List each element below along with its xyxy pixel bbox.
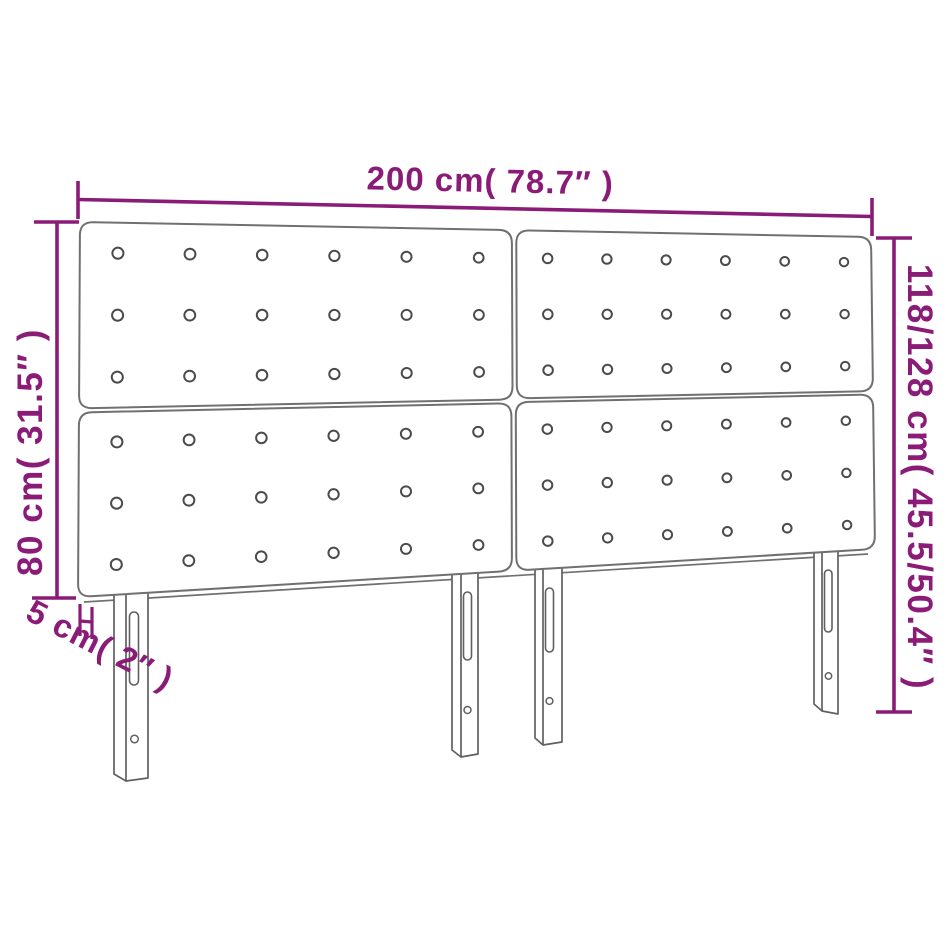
tufting-button <box>183 495 194 506</box>
tufting-button <box>842 417 851 426</box>
tufting-button <box>329 310 339 320</box>
tufting-button <box>722 363 731 372</box>
headboard-panel-lower-right <box>516 395 875 570</box>
leg-screw-hole <box>464 707 471 714</box>
tufting-button <box>543 310 553 320</box>
tufting-button <box>841 362 850 371</box>
depth-dimension-label: 5 cm( 2″ ) <box>21 592 180 697</box>
tufting-button <box>328 548 338 558</box>
leg-slot <box>825 570 833 632</box>
tufting-button <box>111 559 122 570</box>
tufting-button <box>112 248 123 259</box>
tufting-button <box>184 371 195 382</box>
width-dimension-label: 200 cm( 78.7″ ) <box>366 159 614 201</box>
headboard-leg <box>535 566 562 745</box>
tufting-button <box>781 310 790 319</box>
tufting-button <box>183 555 194 566</box>
headboard-leg <box>814 549 838 714</box>
leg-screw-hole <box>825 673 831 679</box>
tufting-button <box>256 551 267 562</box>
tufting-button <box>721 310 730 319</box>
tufting-button <box>603 478 612 487</box>
tufting-button <box>329 251 339 261</box>
tufting-button <box>602 423 611 432</box>
tufting-button <box>662 421 671 430</box>
tufting-button <box>257 370 268 381</box>
tufting-button <box>781 363 790 372</box>
tufting-button <box>257 250 268 261</box>
tufting-button <box>474 367 484 377</box>
tufting-button <box>474 540 484 550</box>
tufting-button <box>782 471 791 480</box>
tufting-button <box>329 369 339 379</box>
tufting-button <box>842 469 851 478</box>
tufting-button <box>722 473 731 482</box>
tufting-button <box>662 364 671 373</box>
tufting-button <box>474 253 484 263</box>
tufting-button <box>401 486 411 496</box>
tufting-button <box>723 527 732 536</box>
tufting-button <box>662 310 671 319</box>
tufting-button <box>721 256 730 265</box>
tufting-button <box>780 257 789 266</box>
tufting-button <box>111 498 122 509</box>
tufting-button <box>328 489 338 499</box>
headboard-leg <box>452 572 478 757</box>
tufting-button <box>543 480 553 490</box>
height-left-dimension-label: 80 cm( 31.5″ ) <box>11 328 50 576</box>
leg-slot <box>546 588 554 652</box>
tufting-button <box>112 372 123 383</box>
tufting-button <box>184 434 195 445</box>
tufting-button <box>257 310 268 321</box>
product-dimension-diagram: 200 cm( 78.7″ ) 80 cm( 31.5″ ) 118/128 c… <box>0 0 947 947</box>
headboard-panel-upper-left <box>79 222 512 408</box>
tufting-button <box>663 476 672 485</box>
tufting-button <box>473 427 483 437</box>
tufting-button <box>543 365 553 375</box>
tufting-button <box>603 365 612 374</box>
tufting-button <box>603 310 612 319</box>
tufting-button <box>401 252 411 262</box>
tufting-button <box>543 424 553 434</box>
tufting-button <box>402 368 412 378</box>
tufting-button <box>543 254 553 264</box>
tufting-button <box>184 310 195 321</box>
tufting-button <box>840 310 849 319</box>
tufting-button <box>663 530 672 539</box>
tufting-button <box>401 544 411 554</box>
headboard-panel-upper-right <box>516 230 873 398</box>
leg-screw-hole <box>131 735 139 743</box>
tufting-button <box>328 431 338 441</box>
tufting-button <box>543 536 553 546</box>
tufting-button <box>783 524 792 533</box>
leg-screw-hole <box>546 698 553 705</box>
tufting-button <box>111 436 122 447</box>
leg-slot <box>464 592 472 660</box>
tufting-button <box>662 255 671 264</box>
tufting-button <box>843 521 852 530</box>
tufting-button <box>256 492 267 503</box>
tufting-button <box>401 429 411 439</box>
tufting-button <box>722 420 731 429</box>
tufting-button <box>112 310 123 321</box>
tufting-button <box>185 249 196 260</box>
tufting-button <box>474 310 484 320</box>
tufting-button <box>473 484 483 494</box>
tufting-button <box>782 418 791 427</box>
tufting-button <box>602 254 611 263</box>
tufting-button <box>840 258 849 267</box>
tufting-button <box>603 533 612 542</box>
dimension-line <box>78 200 872 217</box>
height-right-dimension-label: 118/128 cm( 45.5/50.4″ ) <box>900 264 939 690</box>
tufting-button <box>256 433 267 444</box>
tufting-button <box>402 310 412 320</box>
headboard-panel-lower-left <box>78 403 512 596</box>
